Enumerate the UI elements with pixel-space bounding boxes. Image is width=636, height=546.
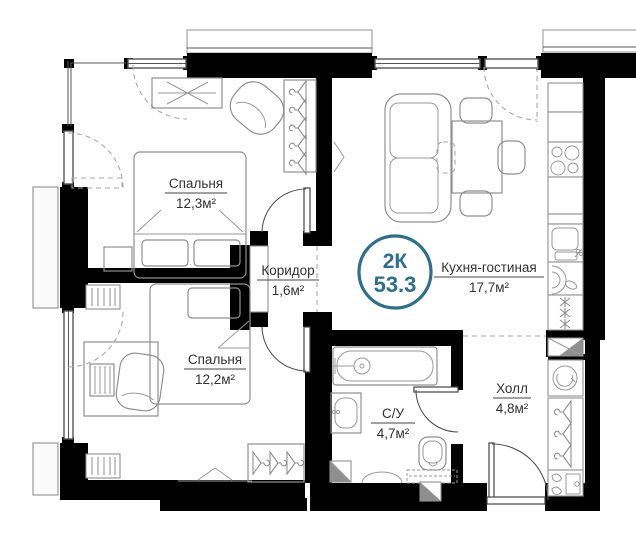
label-bedroom1: Спальня 12,3м²: [165, 176, 227, 211]
radiator-icon: [86, 285, 120, 309]
bathroom-door-leaf: [414, 387, 458, 392]
label-hall: Холл 4,8м²: [493, 381, 531, 416]
room-area: 4,7м²: [377, 426, 410, 441]
bathtub-drain: [354, 358, 370, 374]
room-area: 1,6м²: [272, 283, 305, 298]
kitchen-counter: [548, 214, 583, 224]
room-name: Холл: [496, 381, 528, 396]
windows: [64, 59, 538, 439]
hanger-icon: [289, 117, 306, 139]
room-name: Коридор: [261, 263, 314, 278]
hanger-icon: [289, 152, 306, 174]
corridor-duct: [250, 246, 268, 312]
dining-table: [452, 121, 502, 193]
hanger-icon: [253, 452, 270, 474]
hanger-icon: [289, 81, 306, 103]
cooktop: [548, 142, 583, 177]
armchair: [223, 74, 291, 141]
nightstand: [104, 247, 132, 271]
bed-double: [134, 152, 246, 278]
radiator-icon: [86, 454, 120, 478]
facade-panel-upper: [33, 187, 58, 308]
bedroom1-door-leaf: [304, 188, 310, 233]
room-name: С/У: [382, 406, 405, 421]
bedroom1-left-swing: [68, 133, 123, 188]
entrance-door-leaf: [489, 443, 494, 500]
hanger-icon: [289, 99, 306, 121]
bath-mat: [362, 472, 402, 483]
label-kitchen-living: Кухня-гостиная 17,7м²: [434, 260, 544, 295]
label-bathroom: С/У 4,7м²: [371, 406, 415, 441]
room-area: 4,8м²: [496, 401, 529, 416]
vent-shaft: [420, 482, 441, 501]
room-name: Спальня: [188, 352, 242, 367]
room-name: Кухня-гостиная: [441, 260, 537, 275]
room-area: 12,3м²: [176, 196, 217, 211]
kitchen-cabinet: [548, 83, 583, 112]
badge-total-area: 53.3: [374, 272, 417, 297]
vent-shaft: [330, 461, 351, 482]
hanger-icon: [270, 452, 287, 474]
badge-rooms-label: 2К: [383, 250, 408, 273]
balcony-door-frame: [485, 59, 538, 68]
hanger-icon: [287, 452, 304, 474]
wall-tv: [334, 142, 344, 172]
entrance-threshold: [487, 497, 545, 504]
kitchen-cabinet: [548, 177, 583, 214]
exterior-elements: [33, 30, 636, 495]
window-bedroom1-left: [64, 131, 73, 184]
bedroom1-balcony-swing: [133, 65, 187, 119]
corner-cabinet: [548, 338, 583, 356]
floorplan-page: Спальня 12,3м² Коридор 1,6м² Кухня-гости…: [0, 0, 636, 546]
chair: [460, 98, 492, 123]
bedroom2-door-leaf: [304, 327, 310, 372]
bedroom2-left-swing: [68, 312, 123, 367]
apartment-badge: 2К 53.3: [359, 236, 431, 308]
balcony-outline-top: [187, 30, 372, 53]
tv: [198, 468, 232, 480]
floorplan-drawing: Спальня 12,3м² Коридор 1,6м² Кухня-гости…: [0, 0, 636, 546]
balcony-outline-right: [543, 30, 636, 52]
facade-panel-lower: [33, 443, 58, 495]
chair: [460, 191, 492, 216]
room-area: 17,7м²: [469, 280, 510, 295]
room-area: 12,2м²: [195, 372, 236, 387]
label-bedroom2: Спальня 12,2м²: [184, 352, 246, 387]
hanger-icon: [289, 135, 306, 157]
fridge: [548, 112, 583, 142]
pillow: [142, 240, 188, 266]
room-name: Спальня: [169, 176, 223, 191]
bathroom-furniture: [330, 347, 457, 501]
hall-furniture: [548, 338, 583, 496]
